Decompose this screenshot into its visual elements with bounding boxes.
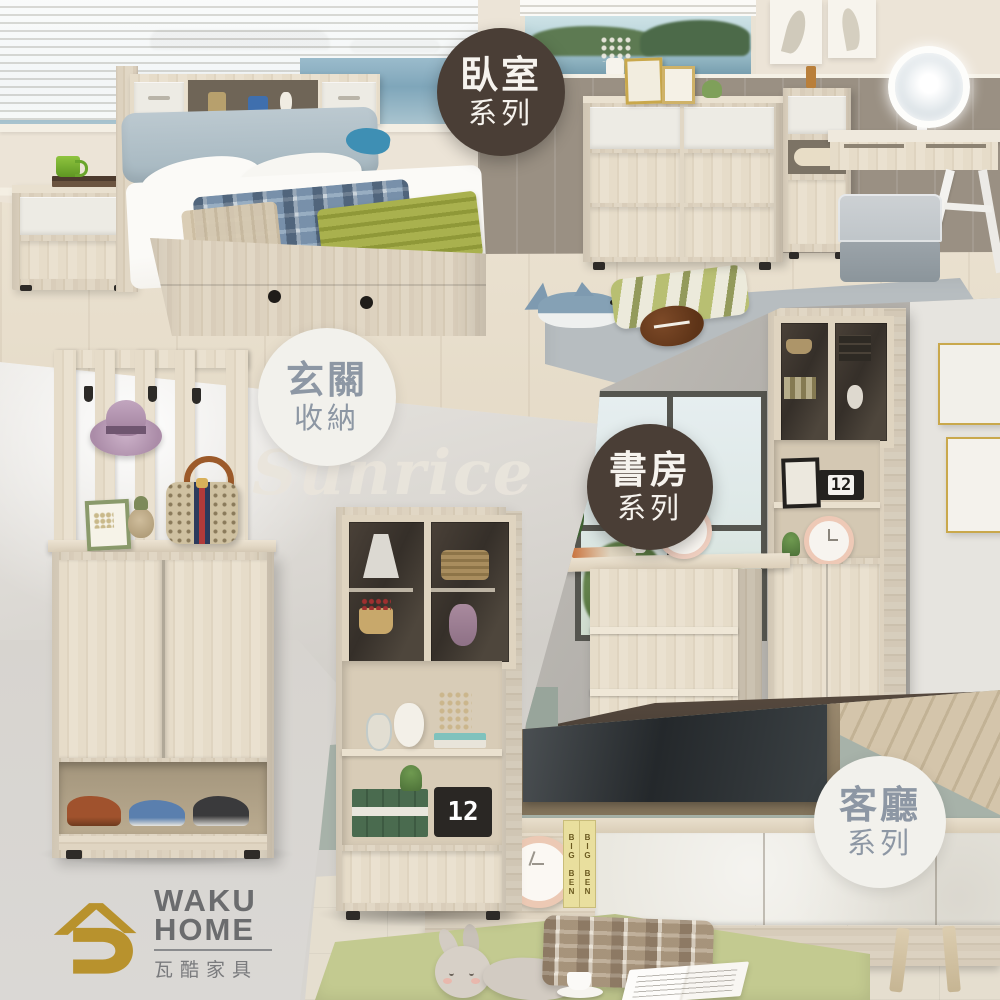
lower-door	[342, 851, 502, 903]
bookcase-glass-door	[828, 316, 894, 448]
drawer-groove	[590, 627, 738, 634]
feather-frame	[828, 0, 876, 58]
desk-clock	[804, 516, 854, 566]
frame-art	[93, 512, 114, 529]
vanity-stool	[838, 194, 942, 282]
green-books	[352, 789, 428, 837]
dresser-drawer	[590, 153, 680, 203]
book-spine: BIG BEN	[579, 820, 596, 908]
bed-base-hole	[360, 296, 373, 309]
shelf-photo-frame	[85, 499, 132, 551]
coat-hook	[192, 388, 201, 404]
shoe-cabinet-door	[59, 560, 162, 758]
calendar-day: 12	[447, 797, 478, 827]
window-blinds	[300, 0, 478, 58]
bookcase-open-shelves: 12	[774, 440, 880, 558]
side-cabinet-drawer	[788, 96, 846, 134]
books-inside	[839, 335, 871, 361]
drawer-handle	[338, 96, 360, 100]
open-shelf-section: 12	[342, 661, 502, 845]
dresser-drawer	[590, 207, 680, 257]
hanging-hat	[90, 392, 162, 458]
mirror-ring-led	[888, 46, 970, 128]
badge-entryway-line2: 收納	[294, 404, 360, 434]
bunny-cheek	[443, 978, 452, 984]
book-label-band	[352, 807, 428, 816]
shoe-cabinet-door	[165, 560, 267, 758]
door-gap	[826, 564, 828, 710]
badge-study-line1: 書房	[609, 451, 691, 490]
logo-name-line2: HOME	[154, 915, 272, 944]
cabinet-foot	[66, 850, 82, 859]
door-gap	[162, 560, 165, 758]
flip-calendar: 12	[434, 787, 492, 837]
drawer-gap	[763, 833, 765, 925]
calendar-day: 12	[828, 475, 854, 495]
vase-inside	[847, 385, 863, 409]
bed-base-hole	[268, 290, 281, 303]
dresser-drawer	[684, 207, 774, 257]
logo-text-block: WAKU HOME 瓦酷家具	[154, 886, 272, 983]
red-flowers	[361, 598, 391, 610]
gold-art-frame	[946, 437, 1000, 533]
window-blinds	[520, 0, 756, 16]
dresser-drawer	[684, 153, 774, 203]
handbag-clasp	[196, 478, 208, 488]
shoe-open-shelf	[59, 762, 267, 834]
display-bookcase: 12	[330, 505, 522, 923]
cup	[567, 972, 591, 990]
stool-base	[840, 242, 940, 282]
basket-inside	[786, 339, 812, 354]
dresser-foot	[759, 262, 771, 270]
shoe-sneakers-blue	[129, 800, 185, 826]
shoe-boots-brown	[67, 796, 121, 826]
vanity-top	[828, 130, 1000, 142]
photo-frame	[662, 66, 695, 104]
glass-shelf-line	[431, 588, 495, 592]
bed-base-gap	[150, 284, 486, 286]
wicker-baskets-inside	[441, 550, 489, 580]
clock-hand	[829, 539, 838, 541]
coat-panel-slat	[54, 350, 76, 544]
promo-collage: 12	[0, 0, 1000, 1000]
cabinet-base-rail	[59, 836, 267, 850]
badge-bedroom-line1: 臥室	[460, 56, 542, 95]
dresser-foot	[593, 262, 605, 270]
drawer-slot	[926, 144, 986, 148]
feather-art	[839, 7, 862, 51]
photo-frame	[624, 57, 664, 104]
figurine-hat	[134, 496, 148, 510]
badge-study-line2: 系列	[617, 494, 683, 524]
drawer-handle	[148, 96, 170, 100]
perfume-bottle	[806, 66, 816, 88]
basket-red-flowers	[359, 608, 393, 634]
badge-entryway-line1: 玄關	[286, 361, 368, 400]
feather-frame	[770, 0, 822, 64]
bunny-eye	[469, 970, 474, 976]
bed-base	[150, 238, 486, 336]
bird-figurine	[128, 496, 154, 542]
clock-hand	[532, 863, 544, 865]
stool-top	[838, 194, 942, 242]
study-bookcase: 12	[768, 308, 906, 722]
gold-art-frame	[938, 343, 1000, 425]
logo-name-line1: WAKU	[154, 886, 272, 915]
logo-divider	[154, 949, 272, 951]
hall-rack	[48, 348, 298, 862]
hat-band	[106, 426, 146, 434]
glass-door-right	[424, 515, 516, 669]
dresser-drawer	[684, 107, 774, 149]
badge-living-line1: 客廳	[839, 786, 921, 825]
figurine-body	[128, 508, 154, 538]
shelf-slab	[48, 540, 276, 552]
feather-art	[781, 8, 809, 55]
magazine-text-lines	[632, 968, 737, 997]
vanity-leg	[978, 169, 1000, 273]
bookcase-foot	[346, 911, 360, 920]
aqua-book-stack	[434, 733, 486, 748]
dried-flowers	[438, 691, 472, 731]
badge-living-series: 客廳 系列	[814, 756, 946, 888]
photo-frame	[781, 457, 821, 508]
shoe-cabinet	[52, 552, 274, 858]
glass-door-left	[342, 515, 434, 669]
vanity-mirror	[884, 46, 960, 138]
bed	[88, 66, 488, 346]
badge-entryway-storage: 玄關 收納	[258, 328, 396, 466]
shark-fin	[574, 282, 594, 296]
handbag-stripe	[194, 482, 210, 544]
books-inside	[784, 377, 816, 399]
logo-name-chinese: 瓦酷家具	[154, 955, 272, 982]
shelf-mini-plant	[400, 765, 422, 791]
dresser	[583, 96, 783, 272]
green-mug	[56, 156, 80, 177]
football-laces	[654, 321, 690, 329]
brand-logo: WAKU HOME 瓦酷家具	[52, 886, 302, 982]
glass-carafe	[366, 713, 392, 751]
vanity-drawers	[830, 142, 998, 170]
nightstand-foot	[20, 285, 32, 291]
coffee-cup	[557, 972, 603, 998]
succulent-plant	[702, 80, 722, 98]
badge-bedroom-line2: 系列	[468, 99, 534, 129]
flip-calendar: 12	[818, 470, 864, 500]
lampshade-inside	[363, 534, 399, 578]
drawer-groove	[590, 689, 738, 696]
drawer-slot	[844, 144, 904, 148]
bookcase-foot	[486, 911, 500, 920]
shelf-board	[342, 749, 502, 756]
bunny-cheek	[471, 978, 480, 984]
badge-living-line2: 系列	[847, 829, 913, 859]
logo-house-icon	[52, 892, 140, 976]
shoe-sneakers-black	[193, 796, 249, 826]
bookcase-lower-doors	[774, 564, 880, 710]
white-vase	[394, 703, 424, 747]
badge-study-series: 書房 系列	[587, 424, 713, 550]
cabinet-foot	[244, 850, 260, 859]
dresser-drawer	[590, 107, 680, 149]
glass-shelf-line	[349, 588, 413, 592]
badge-bedroom-series: 臥室 系列	[437, 28, 565, 156]
cabinet-foot	[789, 252, 799, 259]
bunny-eye	[449, 970, 454, 976]
handbag	[166, 456, 238, 544]
mauve-vase-inside	[449, 604, 477, 646]
mountain	[640, 20, 750, 56]
book-spine: BIG BEN	[563, 820, 580, 908]
